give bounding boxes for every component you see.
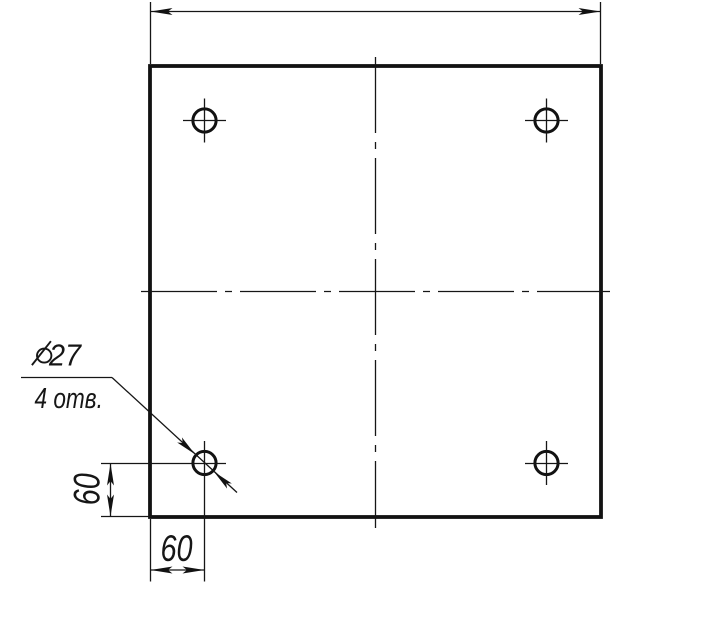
svg-text:60: 60 bbox=[67, 473, 108, 506]
svg-text:60: 60 bbox=[161, 529, 194, 570]
svg-text:4 отв.: 4 отв. bbox=[35, 381, 103, 414]
svg-text:27: 27 bbox=[48, 339, 82, 373]
